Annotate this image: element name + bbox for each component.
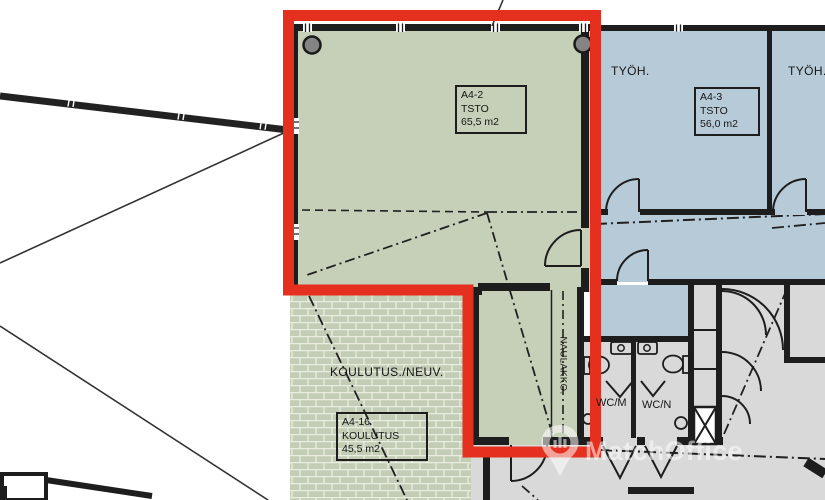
floor-plan-page: A4-2 TSTO 65,5 m2 A4-3 TSTO 56,0 m2 A4-1…: [0, 0, 825, 500]
room-label-tyoh-left: TYÖH.: [611, 64, 650, 78]
room-label-wc-m: WC/M: [596, 397, 627, 409]
room-box-a4-16: A4-16 KOULUTUS 45,5 m2: [336, 412, 428, 461]
room-box-a4-2: A4-2 TSTO 65,5 m2: [455, 85, 527, 134]
room-id: A4-16: [342, 416, 422, 430]
room-area: 45,5 m2: [342, 443, 422, 457]
room-use: TSTO: [461, 103, 521, 117]
room-box-a4-3: A4-3 TSTO 56,0 m2: [694, 87, 760, 136]
room-id: A4-3: [700, 91, 754, 105]
room-id: A4-2: [461, 89, 521, 103]
room-label-koulutus-neuv: KOULUTUS./NEUV.: [330, 365, 444, 379]
room-label-wc-n: WC/N: [642, 399, 671, 411]
room-label-tyoh-right: TYÖH.: [788, 64, 825, 78]
room-use: KOULUTUS: [342, 430, 422, 444]
room-area: 65,5 m2: [461, 116, 521, 130]
room-area: 56,0 m2: [700, 118, 754, 132]
room-label-naulakko: NAULAKKO.: [558, 337, 569, 389]
room-use: TSTO: [700, 105, 754, 119]
